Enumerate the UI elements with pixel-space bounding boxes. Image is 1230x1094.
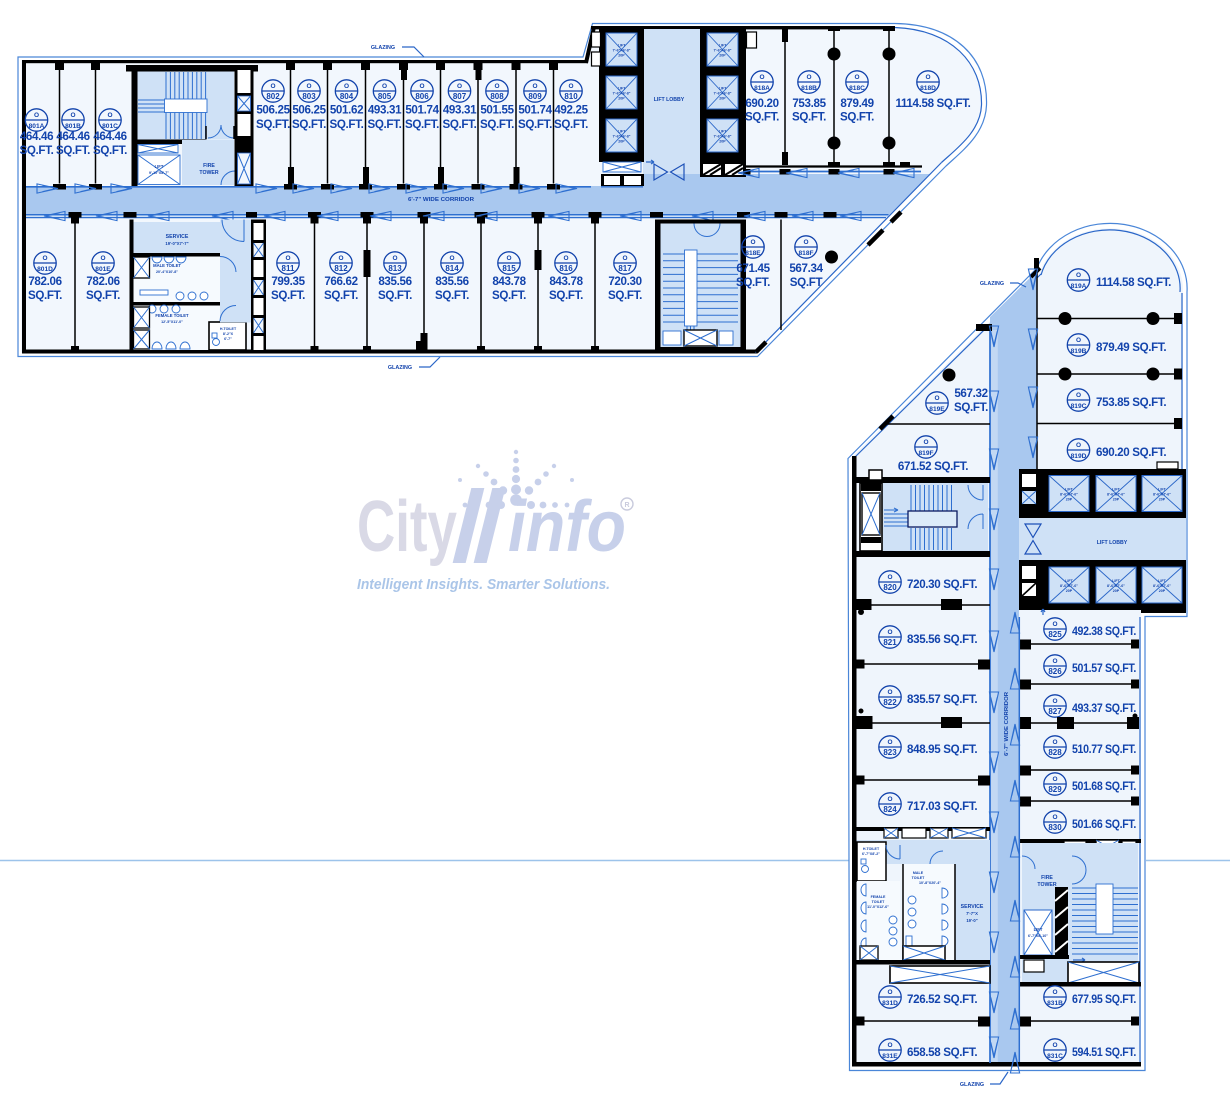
svg-text:6'-7" WIDE CORRIDOR: 6'-7" WIDE CORRIDOR bbox=[1004, 692, 1010, 756]
svg-text:801D: 801D bbox=[37, 266, 53, 273]
svg-text:1114.58 SQ.FT.: 1114.58 SQ.FT. bbox=[895, 97, 970, 110]
svg-text:TOILET: TOILET bbox=[872, 900, 886, 904]
svg-text:O: O bbox=[887, 574, 892, 581]
svg-text:SQ.FT: SQ.FT bbox=[790, 276, 823, 289]
svg-text:O: O bbox=[306, 83, 311, 90]
svg-text:10'-8"X20'-4": 10'-8"X20'-4" bbox=[919, 881, 941, 885]
svg-text:LIFT: LIFT bbox=[155, 164, 164, 169]
svg-text:TOWER: TOWER bbox=[1037, 882, 1056, 888]
svg-text:818A: 818A bbox=[754, 85, 770, 92]
svg-text:830: 830 bbox=[1048, 823, 1062, 832]
svg-text:822: 822 bbox=[883, 698, 897, 707]
svg-text:SQ.FT.: SQ.FT. bbox=[292, 118, 326, 131]
svg-text:H.TOILET: H.TOILET bbox=[220, 327, 237, 331]
svg-text:843.78: 843.78 bbox=[549, 275, 583, 288]
svg-text:FEMALE: FEMALE bbox=[871, 895, 886, 899]
svg-text:567.34: 567.34 bbox=[789, 262, 823, 275]
svg-text:FEMALE TOILET: FEMALE TOILET bbox=[155, 313, 189, 318]
svg-text:20'-4"X10'-8": 20'-4"X10'-8" bbox=[156, 270, 178, 274]
svg-text:831C: 831C bbox=[1047, 1053, 1063, 1060]
svg-text:SQ.FT.: SQ.FT. bbox=[368, 118, 402, 131]
svg-text:SQ.FT.: SQ.FT. bbox=[443, 118, 477, 131]
svg-text:753.85: 753.85 bbox=[792, 97, 826, 110]
svg-text:SQ.FT.: SQ.FT. bbox=[93, 144, 127, 157]
svg-text:SQ.FT.: SQ.FT. bbox=[56, 144, 90, 157]
svg-text:817: 817 bbox=[618, 264, 632, 273]
svg-text:O: O bbox=[934, 395, 939, 402]
svg-text:753.85 SQ.FT.: 753.85 SQ.FT. bbox=[1096, 396, 1166, 409]
svg-text:501.74: 501.74 bbox=[405, 104, 439, 117]
svg-text:O: O bbox=[750, 239, 755, 246]
svg-text:7'-7"X: 7'-7"X bbox=[966, 911, 978, 916]
svg-text:493.31: 493.31 bbox=[443, 104, 477, 117]
svg-text:824: 824 bbox=[883, 805, 897, 814]
svg-text:O: O bbox=[270, 83, 275, 90]
svg-text:O: O bbox=[1076, 272, 1081, 279]
svg-text:O: O bbox=[34, 112, 39, 119]
svg-text:O: O bbox=[925, 74, 930, 81]
svg-text:O: O bbox=[1052, 1042, 1057, 1049]
svg-text:671.45: 671.45 bbox=[736, 262, 770, 275]
svg-text:690.20: 690.20 bbox=[745, 97, 778, 110]
svg-text:720.30: 720.30 bbox=[608, 275, 641, 288]
svg-text:R: R bbox=[624, 502, 629, 509]
svg-text:SQ.FT.: SQ.FT. bbox=[492, 289, 526, 302]
svg-text:SQ.FT.: SQ.FT. bbox=[554, 118, 588, 131]
svg-text:TOILET: TOILET bbox=[912, 876, 926, 880]
svg-text:501.62: 501.62 bbox=[330, 104, 363, 117]
svg-text:O: O bbox=[392, 255, 397, 262]
svg-text:808: 808 bbox=[490, 92, 504, 101]
svg-text:464.46: 464.46 bbox=[93, 130, 127, 143]
svg-text:809: 809 bbox=[528, 92, 542, 101]
svg-text:O: O bbox=[887, 629, 892, 636]
svg-text:671.52 SQ.FT.: 671.52 SQ.FT. bbox=[898, 460, 968, 473]
svg-text:835.56: 835.56 bbox=[435, 275, 469, 288]
svg-text:SQ.FT.: SQ.FT. bbox=[28, 289, 62, 302]
svg-text:807: 807 bbox=[453, 92, 467, 101]
svg-text:726.52 SQ.FT.: 726.52 SQ.FT. bbox=[907, 993, 977, 1006]
svg-text:SQ.FT.: SQ.FT. bbox=[745, 111, 779, 124]
svg-text:801B: 801B bbox=[65, 123, 81, 130]
svg-text:492.38 SQ.FT.: 492.38 SQ.FT. bbox=[1072, 625, 1136, 638]
svg-text:801E: 801E bbox=[95, 266, 111, 273]
svg-text:6'-7" WIDE CORRIDOR: 6'-7" WIDE CORRIDOR bbox=[408, 197, 474, 203]
svg-text:464.46: 464.46 bbox=[20, 130, 54, 143]
svg-text:6'-7": 6'-7" bbox=[224, 337, 232, 341]
svg-text:O: O bbox=[70, 112, 75, 119]
svg-text:6'-7"X8'-10": 6'-7"X8'-10" bbox=[1028, 934, 1048, 938]
svg-text:818F: 818F bbox=[798, 250, 813, 257]
svg-text:MALE TOILET: MALE TOILET bbox=[153, 263, 181, 268]
svg-text:819F: 819F bbox=[918, 450, 933, 457]
svg-text:SQ.FT.: SQ.FT. bbox=[20, 144, 54, 157]
svg-text:O: O bbox=[449, 255, 454, 262]
svg-text:O: O bbox=[1052, 814, 1057, 821]
svg-text:829: 829 bbox=[1048, 785, 1062, 794]
svg-text:SQ.FT.: SQ.FT. bbox=[405, 118, 439, 131]
svg-text:O: O bbox=[1076, 442, 1081, 449]
svg-text:O: O bbox=[506, 255, 511, 262]
svg-text:801C: 801C bbox=[102, 123, 118, 130]
svg-text:501.66 SQ.FT.: 501.66 SQ.FT. bbox=[1072, 818, 1136, 831]
svg-text:SERVICE: SERVICE bbox=[961, 904, 984, 910]
svg-text:O: O bbox=[1076, 392, 1081, 399]
svg-text:506.25: 506.25 bbox=[256, 104, 290, 117]
svg-text:820: 820 bbox=[883, 583, 897, 592]
svg-text:O: O bbox=[338, 255, 343, 262]
svg-text:802: 802 bbox=[266, 92, 280, 101]
svg-text:811: 811 bbox=[282, 264, 295, 273]
svg-text:SQ.FT.: SQ.FT. bbox=[840, 111, 874, 124]
svg-text:814: 814 bbox=[445, 264, 459, 273]
svg-text:501.57 SQ.FT.: 501.57 SQ.FT. bbox=[1072, 662, 1136, 675]
svg-text:SQ.FT.: SQ.FT. bbox=[792, 111, 826, 124]
svg-text:info: info bbox=[508, 487, 626, 567]
svg-text:501.68 SQ.FT.: 501.68 SQ.FT. bbox=[1072, 780, 1136, 793]
svg-text:501.55: 501.55 bbox=[480, 104, 514, 117]
svg-text:SQ.FT.: SQ.FT. bbox=[324, 289, 358, 302]
svg-text:O: O bbox=[622, 255, 627, 262]
svg-text:464.46: 464.46 bbox=[56, 130, 90, 143]
svg-text:782.06: 782.06 bbox=[86, 275, 120, 288]
svg-text:493.31: 493.31 bbox=[368, 104, 402, 117]
svg-text:677.95 SQ.FT.: 677.95 SQ.FT. bbox=[1072, 993, 1136, 1006]
svg-text:835.56 SQ.FT.: 835.56 SQ.FT. bbox=[907, 633, 977, 646]
svg-text:O: O bbox=[806, 74, 811, 81]
svg-text:19'-0": 19'-0" bbox=[966, 918, 977, 923]
svg-text:O: O bbox=[382, 83, 387, 90]
svg-text:510.77 SQ.FT.: 510.77 SQ.FT. bbox=[1072, 743, 1136, 756]
svg-text:818E: 818E bbox=[745, 250, 761, 257]
svg-text:690.20 SQ.FT.: 690.20 SQ.FT. bbox=[1096, 446, 1166, 459]
svg-text:O: O bbox=[419, 83, 424, 90]
svg-text:506.25: 506.25 bbox=[292, 104, 326, 117]
svg-text:SQ.FT.: SQ.FT. bbox=[86, 289, 120, 302]
svg-text:828: 828 bbox=[1048, 748, 1062, 757]
svg-text:O: O bbox=[887, 1042, 892, 1049]
svg-text:806: 806 bbox=[415, 92, 429, 101]
svg-text:O: O bbox=[1052, 658, 1057, 665]
svg-text:SQ.FT.: SQ.FT. bbox=[549, 289, 583, 302]
svg-text:12'-5"X11'-0": 12'-5"X11'-0" bbox=[161, 320, 183, 324]
svg-text:SQ.FT.: SQ.FT. bbox=[330, 118, 364, 131]
svg-text:804: 804 bbox=[340, 92, 354, 101]
svg-text:GLAZING: GLAZING bbox=[388, 365, 412, 371]
svg-text:SQ.FT.: SQ.FT. bbox=[518, 118, 552, 131]
svg-text:813: 813 bbox=[388, 264, 402, 273]
svg-text:567.32: 567.32 bbox=[954, 387, 987, 400]
svg-text:823: 823 bbox=[883, 748, 897, 757]
svg-text:SQ.FT.: SQ.FT. bbox=[608, 289, 642, 302]
svg-text:594.51 SQ.FT.: 594.51 SQ.FT. bbox=[1072, 1046, 1136, 1059]
svg-text:O: O bbox=[1052, 989, 1057, 996]
svg-text:SQ.FT.: SQ.FT. bbox=[480, 118, 514, 131]
svg-text:FIRE: FIRE bbox=[203, 163, 215, 169]
svg-text:831B: 831B bbox=[1047, 1000, 1063, 1007]
svg-text:O: O bbox=[803, 239, 808, 246]
svg-text:O: O bbox=[42, 255, 47, 262]
svg-text:799.35: 799.35 bbox=[271, 275, 305, 288]
svg-text:O: O bbox=[887, 689, 892, 696]
svg-text:816: 816 bbox=[559, 264, 573, 273]
svg-text:LIFT LOBBY: LIFT LOBBY bbox=[654, 97, 685, 103]
svg-text:819C: 819C bbox=[1071, 403, 1087, 410]
svg-text:843.78: 843.78 bbox=[492, 275, 526, 288]
svg-text:GLAZING: GLAZING bbox=[960, 1082, 984, 1088]
svg-text:815: 815 bbox=[502, 264, 516, 273]
svg-text:819A: 819A bbox=[1071, 283, 1087, 290]
svg-text:O: O bbox=[887, 739, 892, 746]
svg-text:City: City bbox=[357, 487, 457, 567]
svg-text:O: O bbox=[1076, 337, 1081, 344]
svg-text:803: 803 bbox=[302, 92, 316, 101]
svg-text:819E: 819E bbox=[929, 406, 945, 413]
svg-text:8'-2"X: 8'-2"X bbox=[223, 332, 234, 336]
svg-text:812: 812 bbox=[334, 264, 348, 273]
svg-text:831D: 831D bbox=[882, 1000, 898, 1007]
svg-text:SERVICE: SERVICE bbox=[166, 234, 189, 240]
svg-text:Intelligent Insights. Smarter: Intelligent Insights. Smarter Solutions. bbox=[357, 576, 610, 593]
svg-text:SQ.FT.: SQ.FT. bbox=[736, 276, 770, 289]
svg-text:O: O bbox=[344, 83, 349, 90]
svg-text:O: O bbox=[1052, 739, 1057, 746]
svg-text:821: 821 bbox=[883, 638, 897, 647]
svg-text:O: O bbox=[1052, 698, 1057, 705]
svg-text:801A: 801A bbox=[29, 123, 45, 130]
svg-text:819D: 819D bbox=[1071, 453, 1087, 460]
svg-text:TOWER: TOWER bbox=[199, 170, 218, 176]
svg-text:9'-10"X8'-7": 9'-10"X8'-7" bbox=[149, 171, 169, 175]
svg-text:492.25: 492.25 bbox=[554, 104, 588, 117]
svg-text:O: O bbox=[887, 796, 892, 803]
svg-text:6'-7"X8'-2": 6'-7"X8'-2" bbox=[862, 852, 880, 856]
svg-text:879.49: 879.49 bbox=[840, 97, 874, 110]
svg-text:O: O bbox=[759, 74, 764, 81]
svg-text:766.62: 766.62 bbox=[324, 275, 357, 288]
svg-text:H.TOILET: H.TOILET bbox=[863, 847, 880, 851]
svg-text:O: O bbox=[887, 989, 892, 996]
svg-text:O: O bbox=[923, 439, 928, 446]
svg-text:SQ.FT.: SQ.FT. bbox=[256, 118, 290, 131]
svg-text:835.57 SQ.FT.: 835.57 SQ.FT. bbox=[907, 693, 977, 706]
svg-text:717.03 SQ.FT.: 717.03 SQ.FT. bbox=[907, 800, 977, 813]
svg-text:827: 827 bbox=[1048, 707, 1062, 716]
svg-text:848.95 SQ.FT.: 848.95 SQ.FT. bbox=[907, 743, 977, 756]
svg-text:O: O bbox=[563, 255, 568, 262]
svg-text:SQ.FT.: SQ.FT. bbox=[378, 289, 412, 302]
svg-text:O: O bbox=[854, 74, 859, 81]
svg-text:1114.58 SQ.FT.: 1114.58 SQ.FT. bbox=[1096, 276, 1171, 289]
svg-text:MALE: MALE bbox=[913, 871, 924, 875]
svg-text:825: 825 bbox=[1048, 630, 1062, 639]
svg-text:SQ.FT.: SQ.FT. bbox=[435, 289, 469, 302]
svg-text:LIFT: LIFT bbox=[1034, 927, 1043, 932]
svg-text:SQ.FT.: SQ.FT. bbox=[954, 401, 988, 414]
svg-text:11'-0"X12'-6": 11'-0"X12'-6" bbox=[867, 905, 889, 909]
svg-text:GLAZING: GLAZING bbox=[371, 45, 395, 51]
svg-text:O: O bbox=[1052, 621, 1057, 628]
svg-text:782.06: 782.06 bbox=[28, 275, 62, 288]
svg-text:826: 826 bbox=[1048, 667, 1062, 676]
svg-text:818B: 818B bbox=[801, 85, 817, 92]
svg-text:720.30 SQ.FT.: 720.30 SQ.FT. bbox=[907, 578, 977, 591]
svg-text:O: O bbox=[457, 83, 462, 90]
svg-text:GLAZING: GLAZING bbox=[980, 281, 1004, 287]
svg-text:O: O bbox=[568, 83, 573, 90]
svg-text:19'-0"X7'-7": 19'-0"X7'-7" bbox=[165, 241, 188, 246]
svg-text:493.37 SQ.FT.: 493.37 SQ.FT. bbox=[1072, 702, 1136, 715]
svg-text:818D: 818D bbox=[920, 85, 936, 92]
svg-text:831E: 831E bbox=[882, 1053, 898, 1060]
svg-text:O: O bbox=[285, 255, 290, 262]
svg-text:805: 805 bbox=[378, 92, 392, 101]
svg-text:810: 810 bbox=[564, 92, 578, 101]
svg-text:SQ.FT.: SQ.FT. bbox=[271, 289, 305, 302]
svg-text:658.58 SQ.FT.: 658.58 SQ.FT. bbox=[907, 1046, 977, 1059]
svg-text:FIRE: FIRE bbox=[1041, 875, 1053, 881]
svg-text:LIFT LOBBY: LIFT LOBBY bbox=[1097, 540, 1128, 546]
svg-text:O: O bbox=[1052, 776, 1057, 783]
svg-text:O: O bbox=[494, 83, 499, 90]
svg-text:O: O bbox=[100, 255, 105, 262]
svg-text:835.56: 835.56 bbox=[378, 275, 412, 288]
svg-text:O: O bbox=[107, 112, 112, 119]
svg-text:O: O bbox=[532, 83, 537, 90]
svg-text:818C: 818C bbox=[849, 85, 865, 92]
svg-text:879.49 SQ.FT.: 879.49 SQ.FT. bbox=[1096, 341, 1166, 354]
svg-text:501.74: 501.74 bbox=[518, 104, 552, 117]
svg-text:819B: 819B bbox=[1071, 348, 1087, 355]
